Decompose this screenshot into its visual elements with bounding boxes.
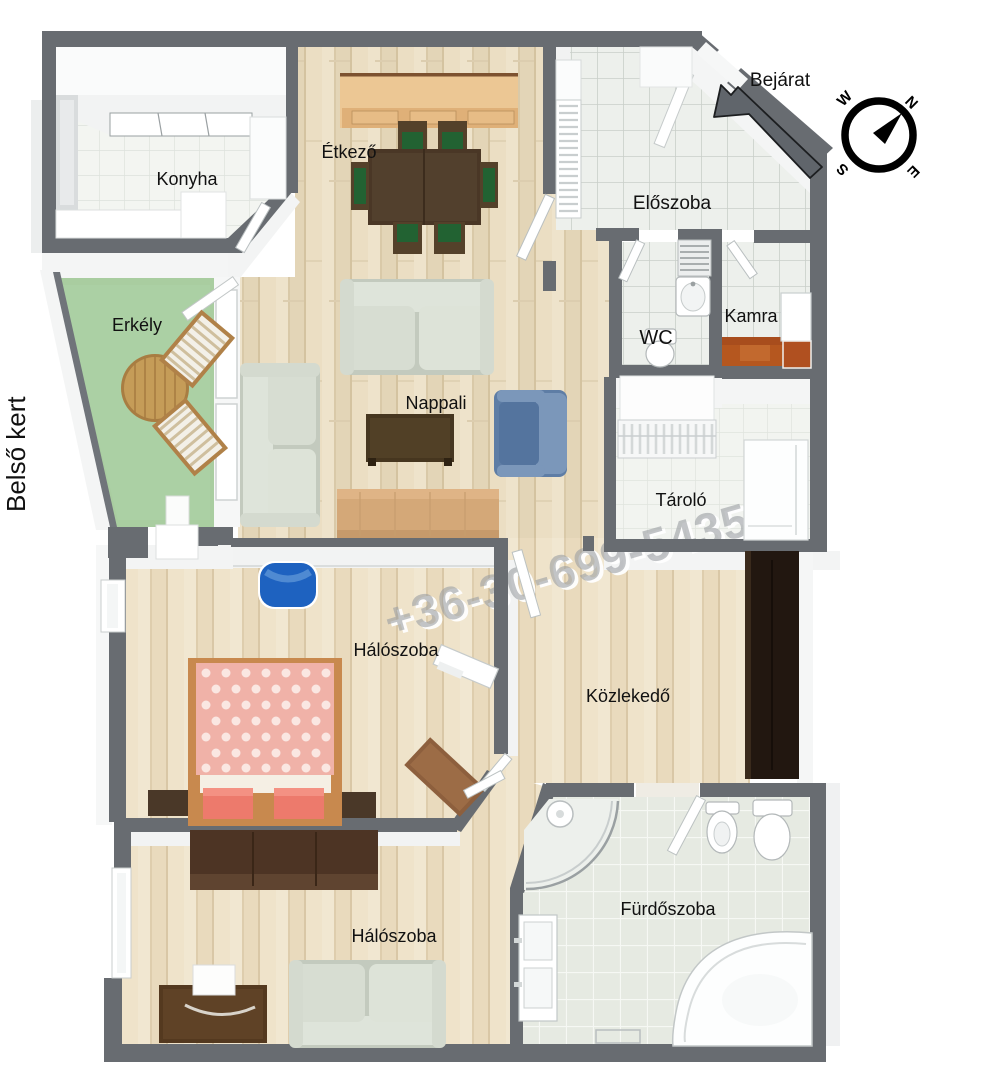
svg-text:Nappali: Nappali — [405, 393, 466, 413]
svg-text:Közlekedő: Közlekedő — [586, 686, 670, 706]
svg-text:Belső kert: Belső kert — [1, 396, 31, 512]
svg-text:Hálószoba: Hálószoba — [353, 640, 439, 660]
svg-text:Konyha: Konyha — [156, 169, 218, 189]
svg-text:Kamra: Kamra — [724, 306, 778, 326]
svg-text:Előszoba: Előszoba — [633, 193, 712, 214]
svg-text:Fürdőszoba: Fürdőszoba — [620, 899, 716, 919]
svg-text:Étkező: Étkező — [321, 142, 376, 162]
svg-text:Tároló: Tároló — [655, 490, 706, 510]
svg-text:WC: WC — [639, 327, 672, 349]
svg-text:Erkély: Erkély — [112, 315, 162, 335]
svg-text:Bejárat: Bejárat — [750, 70, 811, 91]
svg-text:Hálószoba: Hálószoba — [351, 926, 437, 946]
